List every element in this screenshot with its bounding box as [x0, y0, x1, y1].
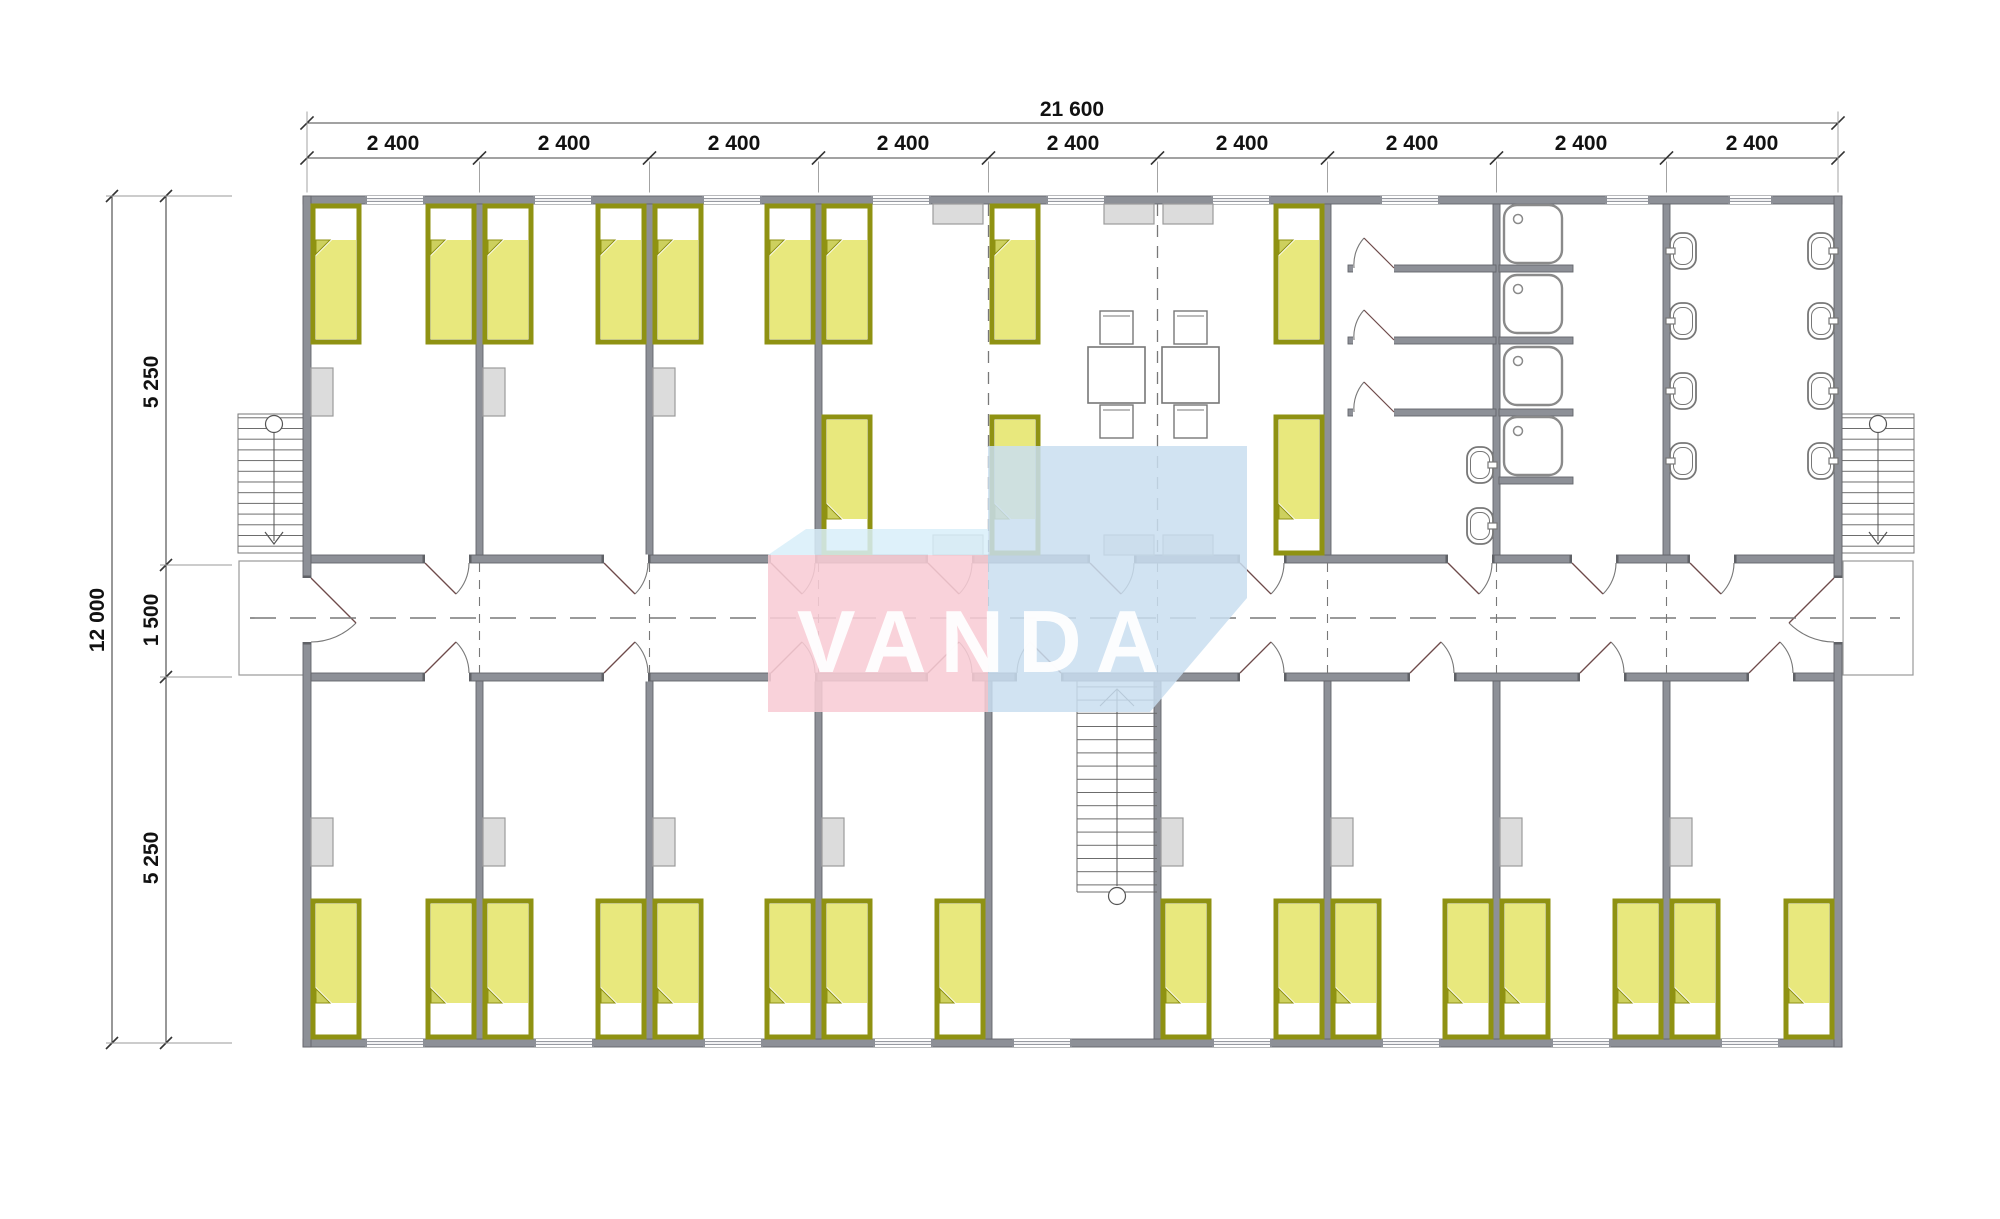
bed: [1276, 417, 1322, 553]
window: [703, 1039, 763, 1047]
room-door: [1570, 555, 1619, 595]
cabinet: [1161, 818, 1183, 866]
table: [1162, 347, 1219, 403]
room-door: [1446, 555, 1495, 595]
table: [1088, 347, 1145, 403]
dimension-top: 21 600 2 400 2 400 2 400 2 400 2 400 2 4…: [301, 98, 1844, 192]
dimension-left: 12 000 5 250 1 500 5 250: [86, 190, 232, 1049]
svg-text:5 250: 5 250: [140, 356, 163, 409]
exterior-wall-bottom: [303, 1039, 1842, 1047]
washbasin: [1666, 233, 1696, 269]
cabinet: [653, 368, 675, 416]
window: [1012, 1039, 1072, 1047]
watermark-logo-text: VANDA: [797, 592, 1173, 691]
stair-start-circle: [1109, 888, 1126, 905]
shower-stall-doors: [1353, 238, 1394, 417]
window: [1211, 196, 1271, 204]
bed: [937, 901, 983, 1037]
bed: [655, 901, 701, 1037]
cabinet: [653, 818, 675, 866]
bed: [428, 901, 474, 1037]
cabinet: [822, 818, 844, 866]
bed: [655, 206, 701, 342]
room-door: [1578, 642, 1627, 682]
bed: [1445, 901, 1491, 1037]
room-door: [1747, 642, 1796, 682]
bed: [824, 901, 870, 1037]
watermark-blue-strip: [768, 529, 988, 555]
room-door: [423, 555, 472, 595]
bed: [767, 901, 813, 1037]
chair: [1100, 405, 1133, 438]
chair: [1100, 311, 1133, 344]
window: [1212, 1039, 1272, 1047]
svg-text:2 400: 2 400: [877, 132, 930, 155]
svg-text:2 400: 2 400: [1216, 132, 1269, 155]
window: [533, 196, 593, 204]
bed: [428, 206, 474, 342]
svg-text:2 400: 2 400: [1386, 132, 1439, 155]
washbasin: [1808, 373, 1838, 409]
bed: [824, 206, 870, 342]
washbasin: [1666, 303, 1696, 339]
washbasin: [1808, 233, 1838, 269]
bed: [313, 206, 359, 342]
window: [873, 1039, 933, 1047]
cabinet: [483, 818, 505, 866]
cabinet: [1670, 818, 1692, 866]
right-exterior-stairs: [1842, 414, 1914, 675]
shower-tray: [1504, 347, 1562, 405]
bed: [313, 901, 359, 1037]
room-door: [423, 642, 472, 682]
window: [871, 196, 931, 204]
room-door: [602, 642, 651, 682]
cabinet: [1104, 204, 1154, 224]
svg-text:2 400: 2 400: [1555, 132, 1608, 155]
washbasin: [1808, 443, 1838, 479]
bed: [485, 901, 531, 1037]
bed: [1502, 901, 1548, 1037]
dim-height-labels: 5 250 1 500 5 250: [140, 356, 163, 885]
bed: [992, 206, 1038, 342]
bed: [485, 206, 531, 342]
cabinet: [311, 818, 333, 866]
internal-staircase: [1077, 681, 1157, 905]
cabinet: [1500, 818, 1522, 866]
left-entrance-door: [303, 576, 357, 645]
window: [1551, 1039, 1611, 1047]
bed: [598, 206, 644, 342]
floor-plan-page: 21 600 2 400 2 400 2 400 2 400 2 400 2 4…: [0, 0, 2000, 1219]
bed: [1163, 901, 1209, 1037]
shower-tray: [1504, 205, 1562, 263]
cabinet: [1331, 818, 1353, 866]
bed: [1786, 901, 1832, 1037]
stair-start-circle: [266, 416, 283, 433]
shower-tray: [1504, 417, 1562, 475]
washbasin: [1666, 373, 1696, 409]
washbasin: [1808, 303, 1838, 339]
window: [534, 1039, 594, 1047]
svg-text:2 400: 2 400: [708, 132, 761, 155]
room-door: [1408, 642, 1457, 682]
bed: [767, 206, 813, 342]
dim-module-labels: 2 400 2 400 2 400 2 400 2 400 2 400 2 40…: [367, 132, 1779, 155]
window: [1046, 196, 1106, 204]
svg-text:2 400: 2 400: [1726, 132, 1779, 155]
chair: [1174, 405, 1207, 438]
bed: [1615, 901, 1661, 1037]
window: [1720, 1039, 1780, 1047]
cabinet: [1163, 204, 1213, 224]
svg-text:2 400: 2 400: [1047, 132, 1100, 155]
cabinet: [483, 368, 505, 416]
dim-total-height: 12 000: [86, 588, 109, 652]
bed: [1276, 901, 1322, 1037]
window: [702, 196, 762, 204]
cabinet: [933, 204, 983, 224]
room-door: [1688, 555, 1737, 595]
sanitary: [1467, 205, 1838, 544]
bed: [1276, 206, 1322, 342]
chair: [1174, 311, 1207, 344]
window: [1728, 196, 1773, 204]
bed: [1672, 901, 1718, 1037]
shower-tray: [1504, 275, 1562, 333]
room-door: [1238, 642, 1287, 682]
svg-text:2 400: 2 400: [538, 132, 591, 155]
washbasin: [1467, 508, 1497, 544]
washbasin: [1666, 443, 1696, 479]
dining-area: [1088, 311, 1219, 438]
window: [365, 196, 425, 204]
left-exterior-stairs: [238, 414, 310, 675]
window: [1380, 196, 1440, 204]
room-door: [602, 555, 651, 595]
dim-total-width: 21 600: [1040, 98, 1104, 121]
window: [1605, 196, 1650, 204]
svg-text:1 500: 1 500: [140, 594, 163, 647]
stair-start-circle: [1870, 416, 1887, 433]
right-entrance-door: [1789, 576, 1843, 645]
svg-text:2 400: 2 400: [367, 132, 420, 155]
window: [1381, 1039, 1441, 1047]
floor-plan: 21 600 2 400 2 400 2 400 2 400 2 400 2 4…: [0, 0, 2000, 1219]
washbasin: [1467, 447, 1497, 483]
window: [365, 1039, 425, 1047]
cabinet: [311, 368, 333, 416]
svg-text:5 250: 5 250: [140, 832, 163, 885]
bed: [1333, 901, 1379, 1037]
bed: [598, 901, 644, 1037]
